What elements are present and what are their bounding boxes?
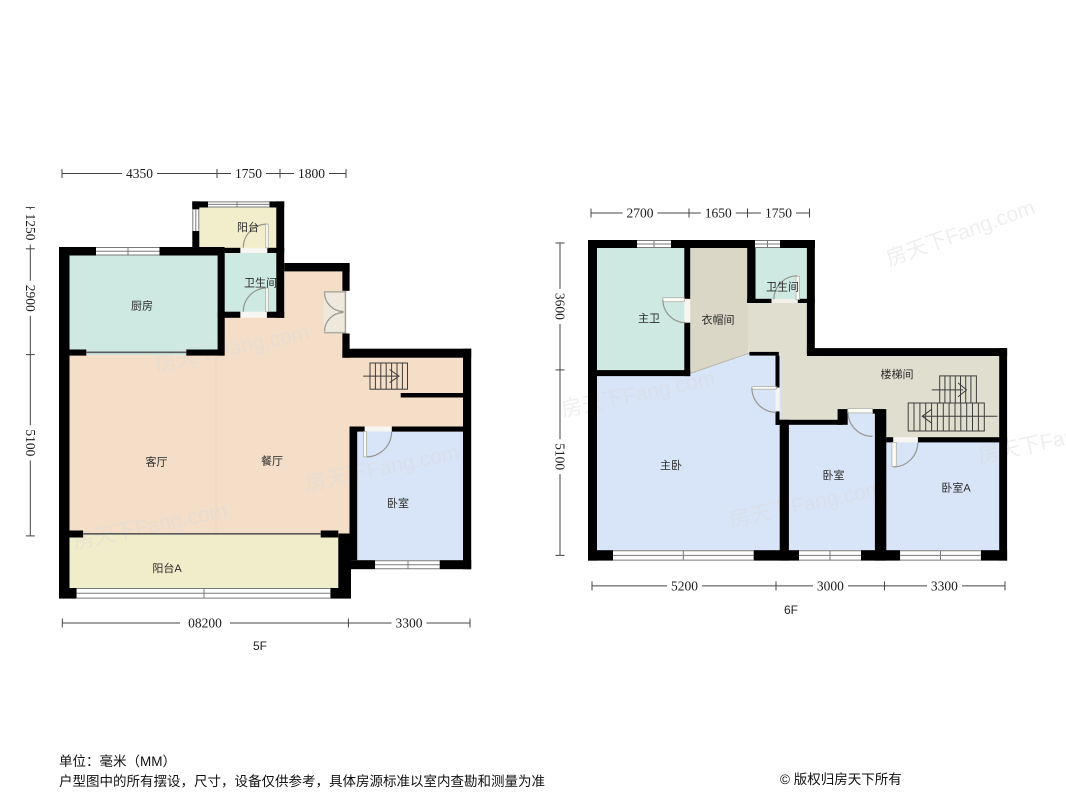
svg-text:主卧: 主卧 bbox=[660, 459, 682, 472]
svg-text:厨房: 厨房 bbox=[131, 300, 153, 313]
svg-text:2900: 2900 bbox=[23, 285, 38, 312]
svg-text:阳台: 阳台 bbox=[237, 220, 259, 234]
svg-text:5100: 5100 bbox=[23, 429, 38, 456]
svg-text:3300: 3300 bbox=[396, 616, 423, 631]
svg-text:卧室A: 卧室A bbox=[941, 481, 971, 495]
svg-text:1650: 1650 bbox=[705, 206, 732, 221]
svg-text:餐厅: 餐厅 bbox=[261, 454, 283, 468]
svg-text:3000: 3000 bbox=[817, 578, 844, 593]
svg-text:户型图中的所有摆设，尺寸，设备仅供参考，具体房源标准以室内查: 户型图中的所有摆设，尺寸，设备仅供参考，具体房源标准以室内查勘和测量为准 bbox=[59, 773, 545, 789]
svg-text:单位：毫米（MM）: 单位：毫米（MM） bbox=[59, 753, 176, 769]
svg-text:卧室: 卧室 bbox=[387, 496, 409, 510]
svg-text:卫生间: 卫生间 bbox=[244, 276, 277, 290]
svg-text:衣帽间: 衣帽间 bbox=[702, 313, 735, 327]
svg-text:4350: 4350 bbox=[126, 166, 153, 181]
svg-text:卧室: 卧室 bbox=[823, 468, 845, 482]
svg-text:阳台A: 阳台A bbox=[152, 561, 182, 575]
svg-text:6F: 6F bbox=[784, 603, 798, 617]
svg-text:© 版权归房天下所有: © 版权归房天下所有 bbox=[780, 771, 902, 787]
svg-text:主卫: 主卫 bbox=[638, 312, 660, 325]
svg-text:卫生间: 卫生间 bbox=[766, 280, 799, 294]
svg-text:5100: 5100 bbox=[553, 443, 568, 470]
svg-text:1250: 1250 bbox=[23, 214, 38, 241]
svg-text:1800: 1800 bbox=[298, 166, 325, 181]
svg-text:客厅: 客厅 bbox=[146, 455, 168, 469]
svg-text:楼梯间: 楼梯间 bbox=[881, 367, 914, 381]
svg-text:5200: 5200 bbox=[671, 578, 698, 593]
svg-text:1750: 1750 bbox=[235, 166, 262, 181]
svg-text:5F: 5F bbox=[253, 639, 267, 653]
svg-text:3600: 3600 bbox=[553, 293, 568, 320]
svg-text:3300: 3300 bbox=[931, 578, 958, 593]
svg-text:1750: 1750 bbox=[765, 206, 792, 221]
svg-text:08200: 08200 bbox=[188, 616, 222, 631]
svg-text:2700: 2700 bbox=[627, 206, 654, 221]
